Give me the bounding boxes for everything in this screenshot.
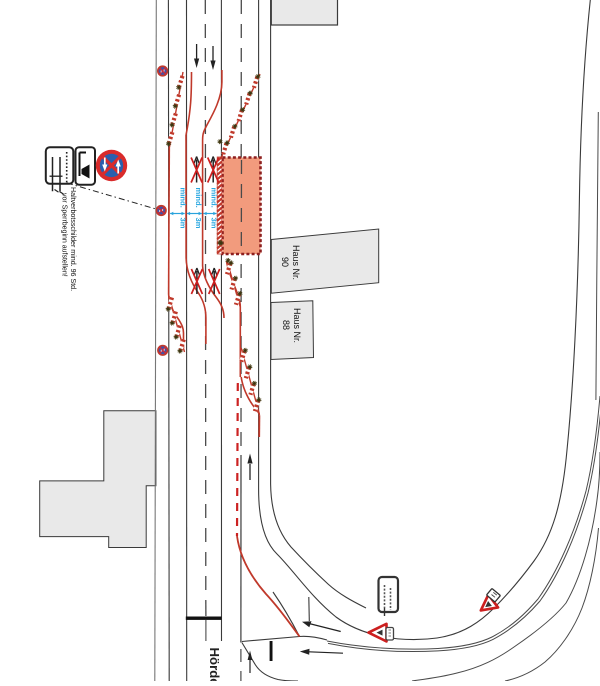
svg-text:3m: 3m bbox=[210, 218, 219, 229]
svg-text:mind.: mind. bbox=[194, 188, 203, 208]
svg-text:Haltverbotsschilder mind. 96 S: Haltverbotsschilder mind. 96 Std. bbox=[69, 187, 77, 291]
svg-text:3m: 3m bbox=[194, 218, 203, 229]
svg-text:vor Sperrbeginn aufstellen!: vor Sperrbeginn aufstellen! bbox=[61, 193, 68, 277]
svg-text:88: 88 bbox=[281, 320, 291, 330]
svg-text:mind.: mind. bbox=[179, 188, 188, 208]
svg-text:mind.: mind. bbox=[210, 188, 219, 208]
svg-text:90: 90 bbox=[280, 257, 290, 267]
svg-text:Haus Nr.: Haus Nr. bbox=[292, 308, 302, 343]
svg-text:3m: 3m bbox=[179, 218, 188, 229]
svg-text:Haus Nr.: Haus Nr. bbox=[291, 245, 301, 280]
svg-text:Hörder: Hörder bbox=[207, 648, 222, 682]
